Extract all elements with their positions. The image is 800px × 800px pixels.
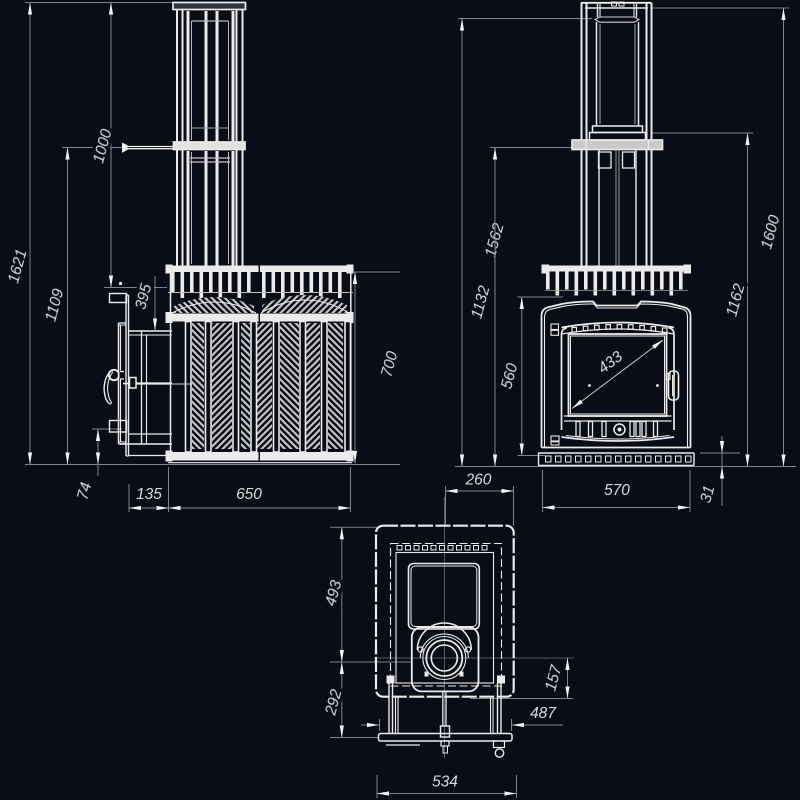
svg-text:570: 570 — [604, 482, 630, 499]
svg-text:534: 534 — [432, 773, 458, 790]
svg-text:135: 135 — [136, 486, 162, 503]
svg-text:260: 260 — [465, 471, 492, 488]
svg-text:650: 650 — [236, 486, 262, 503]
svg-text:487: 487 — [530, 705, 557, 722]
